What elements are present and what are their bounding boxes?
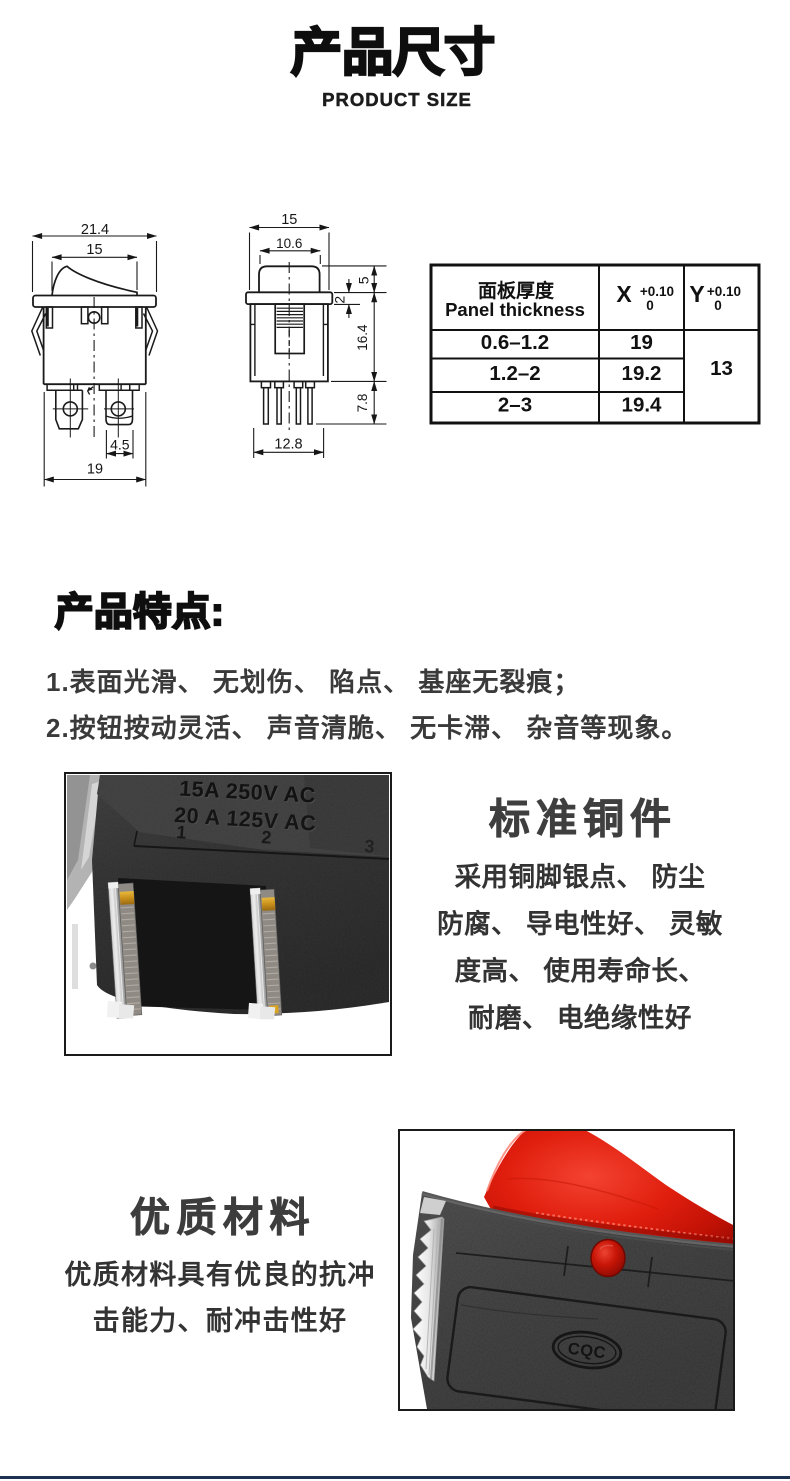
- svg-text:19: 19: [630, 331, 653, 354]
- svg-text:7.8: 7.8: [355, 394, 370, 413]
- svg-text:12.8: 12.8: [274, 437, 302, 453]
- svg-text:2: 2: [261, 827, 272, 848]
- svg-text:15: 15: [86, 242, 102, 258]
- svg-text:15: 15: [281, 212, 297, 228]
- svg-text:+0.10: +0.10: [640, 284, 674, 299]
- svg-text:2–3: 2–3: [498, 394, 532, 417]
- svg-text:3: 3: [364, 836, 375, 857]
- svg-text:X: X: [616, 281, 632, 307]
- svg-text:1: 1: [176, 822, 187, 843]
- svg-text:16.4: 16.4: [355, 324, 370, 351]
- svg-text:0: 0: [646, 298, 654, 313]
- svg-text:0: 0: [714, 298, 722, 313]
- svg-text:0.6–1.2: 0.6–1.2: [481, 331, 549, 354]
- svg-text:Y: Y: [689, 281, 704, 307]
- svg-text:19: 19: [87, 462, 103, 478]
- svg-text:Panel thickness: Panel thickness: [445, 299, 585, 320]
- svg-text:10.6: 10.6: [276, 236, 302, 251]
- svg-text:4.5: 4.5: [110, 437, 130, 453]
- svg-text:13: 13: [710, 357, 733, 380]
- svg-text:19.4: 19.4: [622, 394, 662, 417]
- svg-text:2: 2: [332, 296, 348, 304]
- svg-text:+0.10: +0.10: [707, 284, 741, 299]
- svg-text:1.2–2: 1.2–2: [489, 362, 540, 385]
- svg-text:5: 5: [356, 276, 372, 284]
- svg-text:19.2: 19.2: [622, 362, 662, 385]
